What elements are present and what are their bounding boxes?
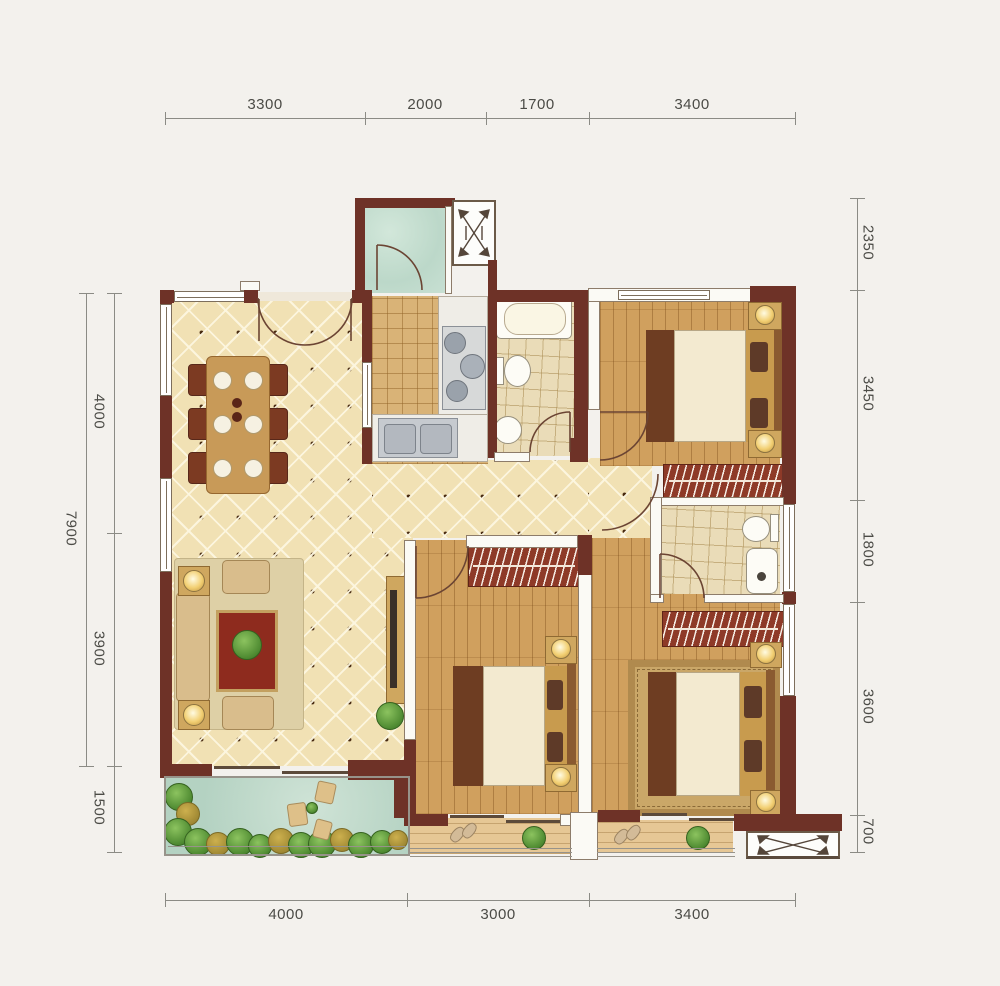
lamp-icon bbox=[756, 792, 776, 812]
bed-duvet bbox=[676, 672, 740, 796]
wall bbox=[355, 198, 365, 296]
dimension-tick bbox=[107, 852, 122, 853]
dimension-tick bbox=[79, 766, 94, 767]
sliding-door bbox=[450, 815, 504, 818]
sliding-door bbox=[642, 813, 687, 816]
toilet-tank bbox=[770, 514, 779, 542]
dimension-tick bbox=[407, 893, 408, 907]
dimension-tick bbox=[795, 112, 796, 125]
toilet-bowl bbox=[504, 355, 531, 387]
bed-headboard bbox=[766, 670, 775, 798]
wall bbox=[578, 535, 592, 575]
sliding-door bbox=[214, 766, 280, 769]
tv-icon bbox=[390, 590, 397, 688]
dimension-tick bbox=[850, 500, 865, 501]
dimension-label: 3600 bbox=[860, 677, 877, 737]
floor-plan: 3300 2000 1700 3400 4000 3000 3400 2350 … bbox=[0, 0, 1000, 986]
dimension-line-left bbox=[114, 293, 115, 852]
partition-wall bbox=[650, 594, 664, 603]
sink-basin bbox=[420, 424, 452, 454]
lamp-icon bbox=[551, 639, 571, 659]
pot-icon bbox=[446, 380, 468, 402]
potted-plant-icon bbox=[522, 826, 546, 850]
dimension-line-right bbox=[857, 198, 858, 852]
pillow bbox=[547, 680, 563, 710]
dimension-tick bbox=[850, 602, 865, 603]
partition-wall bbox=[404, 540, 416, 740]
window bbox=[783, 604, 795, 696]
plant-icon bbox=[376, 702, 404, 730]
dimension-tick bbox=[589, 112, 590, 125]
dimension-line-bottom bbox=[165, 900, 795, 901]
toilet-bowl bbox=[742, 516, 770, 542]
pillow bbox=[750, 342, 768, 372]
balcony-railing bbox=[597, 856, 735, 857]
bowl bbox=[232, 398, 242, 408]
balcony-railing bbox=[597, 852, 735, 853]
wall bbox=[782, 592, 796, 604]
dimension-label: 3300 bbox=[230, 96, 300, 113]
pillow bbox=[547, 732, 563, 762]
partition-wall bbox=[704, 594, 784, 603]
plate bbox=[213, 459, 232, 478]
lamp-icon bbox=[755, 305, 775, 325]
plate bbox=[213, 415, 232, 434]
plate bbox=[244, 415, 263, 434]
bed-foot bbox=[646, 330, 674, 442]
window bbox=[618, 290, 710, 300]
window bbox=[362, 362, 372, 428]
sliding-door bbox=[282, 771, 348, 774]
wall bbox=[780, 696, 796, 818]
dimension-tick bbox=[365, 112, 366, 125]
dimension-label: 7900 bbox=[63, 499, 80, 559]
pillow bbox=[750, 398, 768, 428]
bathtub-basin bbox=[504, 303, 566, 335]
dimension-label: 3400 bbox=[657, 96, 727, 113]
table-lamp-icon bbox=[183, 570, 205, 592]
partition-wall bbox=[494, 452, 530, 462]
lamp-icon bbox=[756, 644, 776, 664]
bed-headboard bbox=[774, 328, 782, 444]
pot-icon bbox=[460, 354, 485, 379]
wardrobe bbox=[663, 464, 787, 499]
partition-wall bbox=[650, 497, 662, 603]
wall bbox=[362, 290, 372, 362]
dimension-label: 3000 bbox=[463, 906, 533, 923]
plate bbox=[213, 371, 232, 390]
wall bbox=[362, 428, 372, 464]
entry-threshold bbox=[258, 292, 352, 301]
bed-foot bbox=[648, 672, 676, 796]
balcony-railing bbox=[597, 848, 735, 849]
wall bbox=[598, 810, 640, 822]
balcony-railing bbox=[410, 848, 572, 849]
pillow bbox=[744, 686, 762, 718]
dimension-label: 3450 bbox=[860, 364, 877, 424]
dimension-tick bbox=[107, 766, 122, 767]
plate bbox=[244, 459, 263, 478]
dimension-tick bbox=[165, 112, 166, 125]
dimension-label: 1700 bbox=[502, 96, 572, 113]
dimension-label: 1500 bbox=[91, 778, 108, 838]
wall bbox=[570, 438, 588, 462]
balcony-railing bbox=[410, 852, 572, 853]
partition-wall bbox=[588, 288, 600, 410]
wall bbox=[782, 286, 796, 504]
dimension-label: 1800 bbox=[860, 520, 877, 580]
pillar bbox=[570, 812, 598, 860]
sofa bbox=[176, 592, 210, 702]
dimension-line-left-total bbox=[86, 293, 87, 766]
sliding-door bbox=[506, 820, 560, 823]
utility-balcony-floor bbox=[365, 206, 447, 293]
balcony-railing bbox=[168, 846, 406, 847]
wall bbox=[734, 814, 842, 831]
dimension-line-top bbox=[165, 118, 795, 119]
dimension-label: 3400 bbox=[657, 906, 727, 923]
window bbox=[160, 478, 172, 572]
armchair bbox=[222, 696, 274, 730]
wall bbox=[574, 290, 588, 456]
hallway-floor bbox=[372, 460, 588, 538]
dimension-tick bbox=[165, 893, 166, 907]
armchair bbox=[222, 560, 270, 594]
wall bbox=[488, 290, 588, 302]
pot-icon bbox=[444, 332, 466, 354]
dimension-tick bbox=[107, 293, 122, 294]
window bbox=[783, 504, 795, 592]
dimension-tick bbox=[850, 198, 865, 199]
dimension-tick bbox=[486, 112, 487, 125]
dimension-tick bbox=[589, 893, 590, 907]
ac-platform bbox=[452, 200, 496, 266]
partition-wall bbox=[650, 497, 784, 506]
window bbox=[160, 304, 172, 396]
wash-basin bbox=[494, 416, 522, 444]
balcony-railing bbox=[410, 856, 572, 857]
dimension-label: 4000 bbox=[91, 382, 108, 442]
table-lamp-icon bbox=[183, 704, 205, 726]
dimension-tick bbox=[107, 533, 122, 534]
bed-duvet bbox=[674, 330, 746, 442]
sliding-door bbox=[689, 818, 734, 821]
lamp-icon bbox=[755, 433, 775, 453]
potted-plant-icon bbox=[686, 826, 710, 850]
partition-wall bbox=[445, 206, 452, 294]
dimension-label: 4000 bbox=[251, 906, 321, 923]
dimension-label: 3900 bbox=[91, 619, 108, 679]
bowl bbox=[232, 412, 242, 422]
wall bbox=[355, 198, 455, 208]
dimension-tick bbox=[795, 893, 796, 907]
pillow bbox=[744, 740, 762, 772]
sink-basin bbox=[384, 424, 416, 454]
dimension-label: 2350 bbox=[860, 213, 877, 273]
dimension-label: 2000 bbox=[390, 96, 460, 113]
partition-wall bbox=[578, 535, 592, 818]
centerpiece-plant-icon bbox=[232, 630, 262, 660]
partition-wall bbox=[466, 535, 578, 548]
bed-foot bbox=[453, 666, 483, 786]
wall bbox=[404, 814, 448, 826]
dimension-tick bbox=[79, 293, 94, 294]
shower-drain-icon bbox=[757, 572, 766, 581]
hallway-floor-east bbox=[588, 458, 652, 538]
wall bbox=[488, 290, 497, 458]
ac-platform bbox=[746, 831, 840, 859]
plate bbox=[244, 371, 263, 390]
lamp-icon bbox=[551, 767, 571, 787]
balcony-railing bbox=[164, 776, 410, 856]
dimension-tick bbox=[850, 290, 865, 291]
shower-tray bbox=[746, 548, 778, 594]
dimension-label: 700 bbox=[860, 802, 877, 862]
wall bbox=[244, 290, 258, 303]
bed-duvet bbox=[483, 666, 545, 786]
wardrobe bbox=[468, 547, 580, 587]
